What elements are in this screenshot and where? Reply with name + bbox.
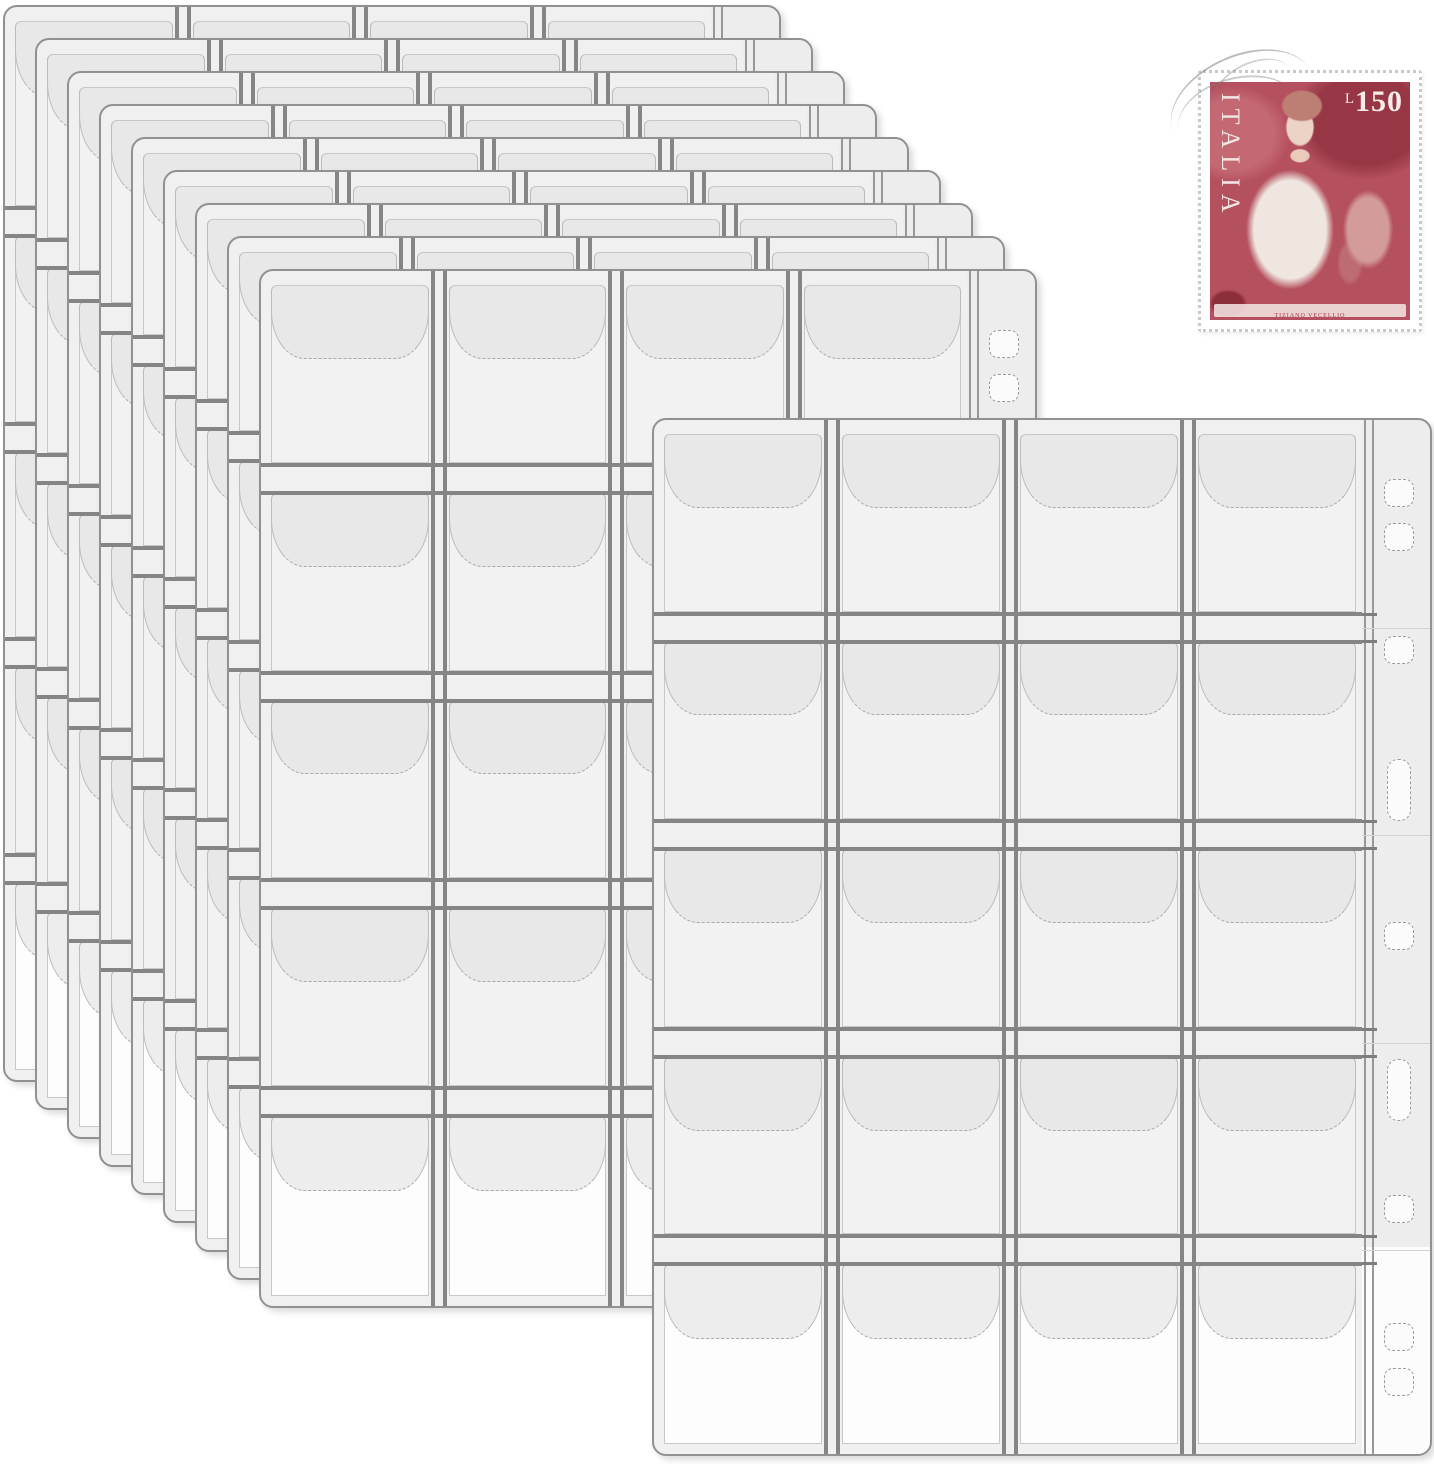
coin-pocket [1020, 642, 1178, 820]
weld-line [1362, 1028, 1377, 1058]
coin-pocket [449, 701, 607, 879]
pocket-flap [842, 434, 1000, 508]
pocket-flap [1198, 642, 1356, 716]
pocket-flap [842, 849, 1000, 923]
coin-pocket [842, 642, 1000, 820]
pocket-flap [1020, 1057, 1178, 1131]
binder-hole [989, 374, 1019, 402]
coin-pocket [842, 1264, 1000, 1444]
weld-line [431, 271, 447, 1306]
pocket-flap [271, 285, 429, 359]
coin-pocket [1020, 1057, 1178, 1235]
coin-pocket [1198, 642, 1356, 820]
stamp-denomination: L150 [1345, 85, 1403, 119]
pocket-flap [449, 908, 607, 982]
pocket-flap [1020, 849, 1178, 923]
coin-pocket [449, 1116, 607, 1296]
coin-pocket [271, 285, 429, 463]
binder-hole [989, 330, 1019, 358]
weld-line [608, 271, 624, 1306]
weld-line [654, 612, 1366, 644]
coin-pocket [271, 908, 429, 1086]
stamp-caption: TIZIANO VECELLIO [1274, 313, 1345, 319]
coin-pocket [1020, 434, 1178, 612]
pocket-flap [1020, 434, 1178, 508]
pocket-flap [664, 642, 822, 716]
weld-line [654, 1234, 1366, 1266]
coin-pocket [449, 493, 607, 671]
pocket-flap [271, 1116, 429, 1191]
pocket-flap [1020, 1264, 1178, 1339]
stamp-denomination-value: 150 [1355, 85, 1403, 118]
weld-line [1180, 420, 1196, 1454]
coin-pocket [664, 434, 822, 612]
product-scene: ITALIA L150 TIZIANO VECELLIO [0, 0, 1434, 1464]
coin-pocket [1020, 1264, 1178, 1444]
weld-line [1362, 1235, 1377, 1265]
pocket-flap [271, 493, 429, 567]
strip-weld-line [1364, 420, 1374, 1454]
weld-line [654, 1027, 1366, 1059]
coin-pocket [449, 908, 607, 1086]
coin-pocket [842, 1057, 1000, 1235]
pocket-flap [664, 434, 822, 508]
pocket-flap [449, 493, 607, 567]
weld-line [1362, 820, 1377, 850]
binder-hole [1384, 523, 1414, 551]
coin-pocket [1198, 1264, 1356, 1444]
binder-hole [1384, 479, 1414, 507]
pocket-flap [842, 642, 1000, 716]
pocket-flap [449, 1116, 607, 1191]
coin-pocket [842, 849, 1000, 1027]
pocket-flap [449, 285, 607, 359]
postage-stamp: ITALIA L150 TIZIANO VECELLIO [1198, 70, 1422, 332]
pocket-flap [626, 285, 784, 359]
weld-line [824, 420, 840, 1454]
pocket-flap [1198, 434, 1356, 508]
pocket-flap [804, 285, 962, 359]
binder-hole [1384, 1368, 1414, 1396]
pocket-flap [271, 701, 429, 775]
binder-hole [1387, 1059, 1411, 1121]
pocket-page [652, 418, 1432, 1456]
binder-hole [1387, 759, 1411, 821]
binder-hole [1384, 1195, 1414, 1223]
pocket-flap [664, 1057, 822, 1131]
binder-hole [1384, 1323, 1414, 1351]
coin-pocket [1198, 434, 1356, 612]
pocket-flap [842, 1057, 1000, 1131]
coin-pocket [271, 701, 429, 879]
coin-pocket [1020, 849, 1178, 1027]
binder-hole [1384, 636, 1414, 664]
stamp-caption-band: TIZIANO VECELLIO [1214, 304, 1406, 317]
coin-pocket [271, 493, 429, 671]
stamp-country-label: ITALIA [1215, 93, 1245, 220]
binder-hole [1384, 922, 1414, 950]
pocket-flap [1020, 642, 1178, 716]
coin-pocket [664, 1264, 822, 1444]
coin-pocket [271, 1116, 429, 1296]
stamp-denomination-currency: L [1345, 91, 1354, 107]
pocket-flap [1198, 1264, 1356, 1339]
pocket-flap [1198, 849, 1356, 923]
coin-pocket [1198, 849, 1356, 1027]
coin-pocket [449, 285, 607, 463]
weld-line [1002, 420, 1018, 1454]
binder-strip [1362, 420, 1430, 1454]
pocket-flap [664, 1264, 822, 1339]
coin-pocket [664, 1057, 822, 1235]
pocket-flap [664, 849, 822, 923]
weld-line [654, 819, 1366, 851]
pocket-flap [842, 1264, 1000, 1339]
pocket-flap [449, 701, 607, 775]
coin-pocket [1198, 1057, 1356, 1235]
coin-pocket [664, 642, 822, 820]
coin-pocket [664, 849, 822, 1027]
pocket-flap [1198, 1057, 1356, 1131]
pocket-flap [271, 908, 429, 982]
coin-pocket [842, 434, 1000, 612]
weld-line [1362, 613, 1377, 643]
